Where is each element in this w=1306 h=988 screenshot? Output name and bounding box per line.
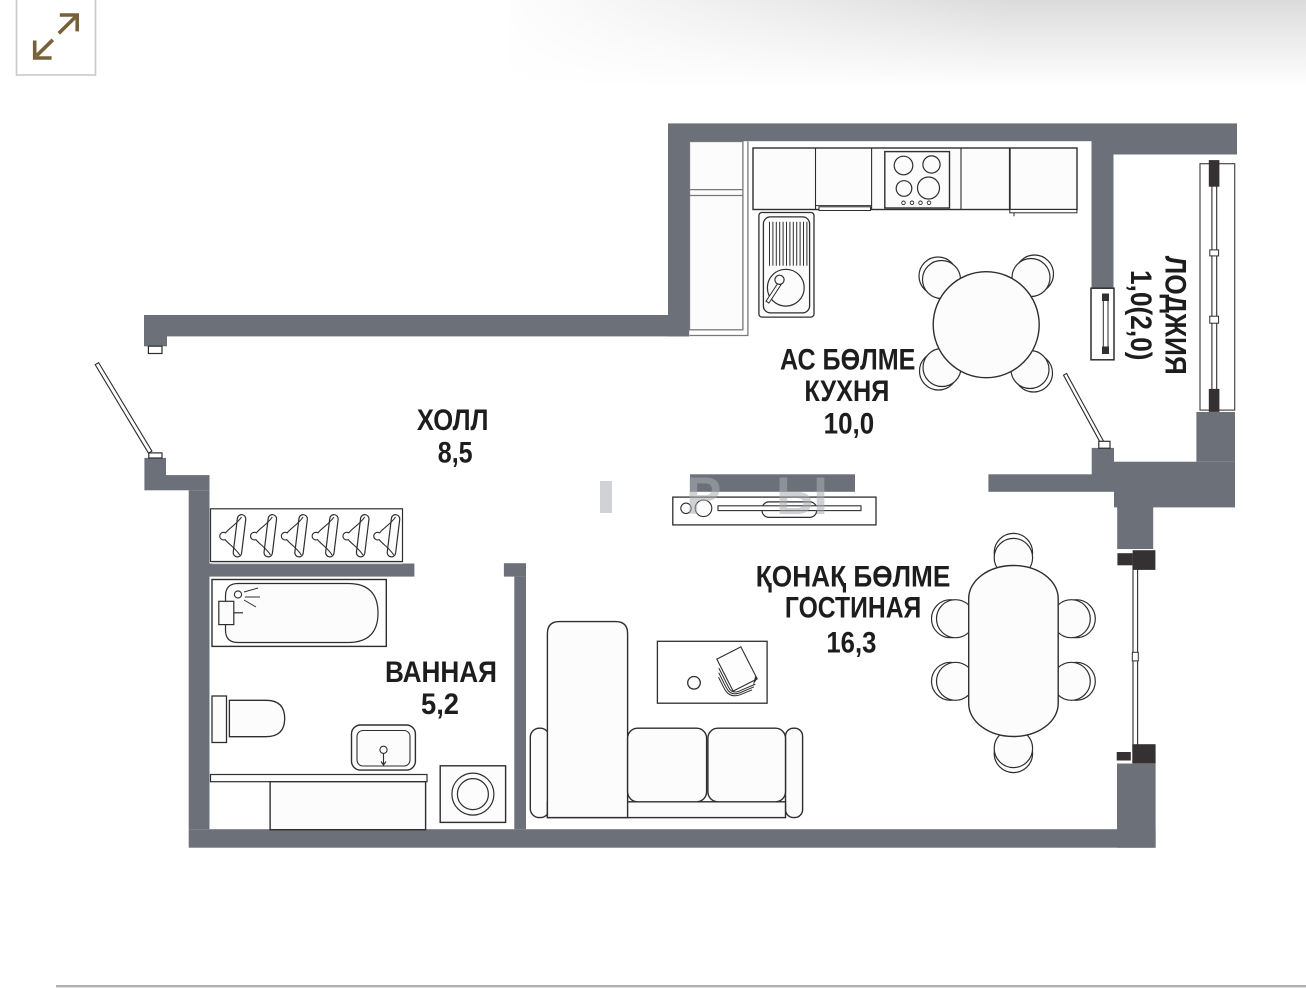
svg-text:ҚОНАҚ БӨЛМЕ: ҚОНАҚ БӨЛМЕ xyxy=(756,561,951,594)
svg-text:ХОЛЛ: ХОЛЛ xyxy=(417,404,489,437)
svg-text:ЛОДЖИЯ: ЛОДЖИЯ xyxy=(1159,256,1192,375)
svg-text:Ы: Ы xyxy=(776,467,828,526)
svg-text:КУХНЯ: КУХНЯ xyxy=(804,375,889,408)
svg-text:8,5: 8,5 xyxy=(438,437,473,470)
svg-text:ВАННАЯ: ВАННАЯ xyxy=(385,656,497,689)
svg-text:16,3: 16,3 xyxy=(826,627,876,660)
svg-text:10,0: 10,0 xyxy=(824,408,875,441)
svg-text:1,0(2,0): 1,0(2,0) xyxy=(1124,270,1157,361)
svg-text:АС БӨЛМЕ: АС БӨЛМЕ xyxy=(780,344,916,377)
svg-text:ГОСТИНАЯ: ГОСТИНАЯ xyxy=(785,592,921,625)
svg-text:5,2: 5,2 xyxy=(421,688,459,721)
svg-text:Р: Р xyxy=(686,467,721,526)
